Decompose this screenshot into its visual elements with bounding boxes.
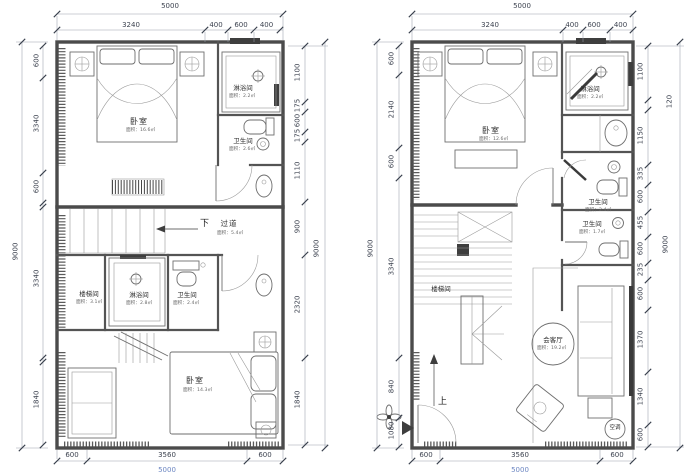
dim-label: 900 <box>295 209 302 245</box>
dim-label: 9000 <box>368 231 375 267</box>
shower-room-top <box>222 52 280 112</box>
dim-label: 600 <box>34 43 41 79</box>
stairs-lower <box>114 332 168 363</box>
dim-label: 9000 <box>13 234 20 270</box>
nightstand-lamp-icon <box>70 52 94 76</box>
dim-label: 840 <box>389 369 396 405</box>
dim-label: 600 <box>638 417 645 453</box>
dim-label: 600 <box>602 452 632 459</box>
room-label-bath: 卫生间 <box>165 292 209 299</box>
room-area: 面积：12.6㎡ <box>479 137 508 142</box>
toilet-icon <box>244 118 274 135</box>
nightstand-lamp-icon <box>418 52 442 76</box>
dim-label: 3240 <box>101 22 161 29</box>
room-area: 面积：2.4㎡ <box>173 301 199 306</box>
dim-label: 3340 <box>34 106 41 142</box>
stairs-up-label: 上 <box>438 398 447 407</box>
room-label-bedroom: 卧室 <box>461 127 521 135</box>
door-swing <box>565 242 587 264</box>
dim-label: 175 <box>295 118 302 154</box>
dim-label: 1100 <box>295 55 302 91</box>
dim-label: 3560 <box>490 452 550 459</box>
wardrobe <box>68 368 116 438</box>
room-area: 面积：16.6㎡ <box>126 128 155 133</box>
sink-icon <box>256 274 272 296</box>
dim-label: 2320 <box>295 287 302 323</box>
dim-label: 600 <box>251 452 279 459</box>
dim-label: 1840 <box>295 382 302 418</box>
room-area: 面积：3.1㎡ <box>76 300 102 305</box>
sofa <box>578 286 624 396</box>
dim-label: 400 <box>254 22 279 29</box>
dim-label: 3340 <box>34 261 41 297</box>
shower-room <box>566 52 628 110</box>
room-area: 面积：2.2㎡ <box>577 95 603 100</box>
room-label-stairwell: 楼梯间 <box>419 286 463 293</box>
stairs-upper <box>59 179 165 253</box>
nightstand-lamp-icon <box>254 332 276 352</box>
toilet-icon <box>173 261 205 286</box>
door-swing <box>564 160 586 180</box>
dim-label: 600 <box>412 452 440 459</box>
dim-label: 600 <box>638 276 645 312</box>
dim-label: 1340 <box>638 379 645 415</box>
room-label-stairwell: 楼梯间 <box>67 291 111 298</box>
dim-label: 5000 <box>130 3 210 10</box>
door-swing <box>222 255 258 291</box>
floorplan-sheet: 5000 3240 400 600 400 9000 600 3340 600 … <box>0 0 694 473</box>
dim-label: 1100 <box>638 54 645 90</box>
room-label-bath: 卫生间 <box>221 138 265 145</box>
bed-bench <box>455 150 517 168</box>
floorplan-linework <box>0 0 694 473</box>
dim-label: 9000 <box>314 231 321 267</box>
dim-label: 1150 <box>638 118 645 154</box>
room-area: 面积：2.8㎡ <box>126 301 152 306</box>
stairs-down-arrow-icon <box>156 226 198 233</box>
dim-label: 400 <box>608 22 633 29</box>
dim-label: 5000 <box>147 467 187 473</box>
dim-label: 600 <box>389 144 396 180</box>
dim-label: 600 <box>34 169 41 205</box>
door-swing <box>516 168 553 205</box>
room-label-shower: 淋浴间 <box>117 292 161 299</box>
dim-label: 1370 <box>638 322 645 358</box>
dim-label: 600 <box>581 22 607 29</box>
dim-label: 1110 <box>295 153 302 189</box>
room-label-shower: 淋浴间 <box>568 86 612 93</box>
door-swing <box>216 165 252 201</box>
dim-label: 120 <box>667 84 674 120</box>
sink-icon <box>600 115 627 152</box>
nightstand-lamp-icon <box>533 52 557 76</box>
dim-label: 9000 <box>663 227 670 263</box>
dim-label: 3240 <box>460 22 520 29</box>
room-label-bedroom: 卧室 <box>165 377 225 385</box>
room-label-corridor: 过道 <box>206 220 252 228</box>
nightstand-lamp-icon <box>180 52 204 76</box>
room-label-living: 会客厅 <box>531 337 575 344</box>
dim-label: 3560 <box>137 452 197 459</box>
room-area: 面积：1.7㎡ <box>579 230 605 235</box>
nightstand-lamp-icon <box>256 422 276 438</box>
dim-label: 600 <box>58 452 86 459</box>
sink-icon <box>256 175 272 197</box>
stairs-up-arrow-icon <box>430 354 438 406</box>
armchair <box>515 384 564 433</box>
room-area: 面积：14.3㎡ <box>183 388 212 393</box>
dim-label: 5000 <box>500 467 540 473</box>
room-label-bath: 卫生间 <box>576 199 620 206</box>
living-area <box>532 268 578 443</box>
dim-label: 400 <box>204 22 228 29</box>
room-area: 面积：2.4㎡ <box>585 208 611 213</box>
dim-label: 5000 <box>482 3 562 10</box>
room-area: 面积：5.4㎡ <box>217 231 243 236</box>
room-area: 面积：19.2㎡ <box>537 346 566 351</box>
dim-label: 600 <box>228 22 254 29</box>
entry-door-swing <box>418 405 456 443</box>
dim-label: 3340 <box>389 249 396 285</box>
dim-label: 2140 <box>389 92 396 128</box>
dim-label: 600 <box>389 41 396 77</box>
room-label-bedroom: 卧室 <box>109 118 169 126</box>
room-label-bath: 卫生间 <box>570 221 614 228</box>
room-area: 面积：2.6㎡ <box>229 147 255 152</box>
room-area: 面积：2.2㎡ <box>229 94 255 99</box>
ac-label: 空调 <box>607 426 623 432</box>
toilet-icon <box>597 161 627 196</box>
side-table <box>588 398 612 418</box>
dim-label: 1080 <box>389 413 396 449</box>
dim-label: 1840 <box>34 382 41 418</box>
room-label-shower: 淋浴间 <box>221 85 265 92</box>
